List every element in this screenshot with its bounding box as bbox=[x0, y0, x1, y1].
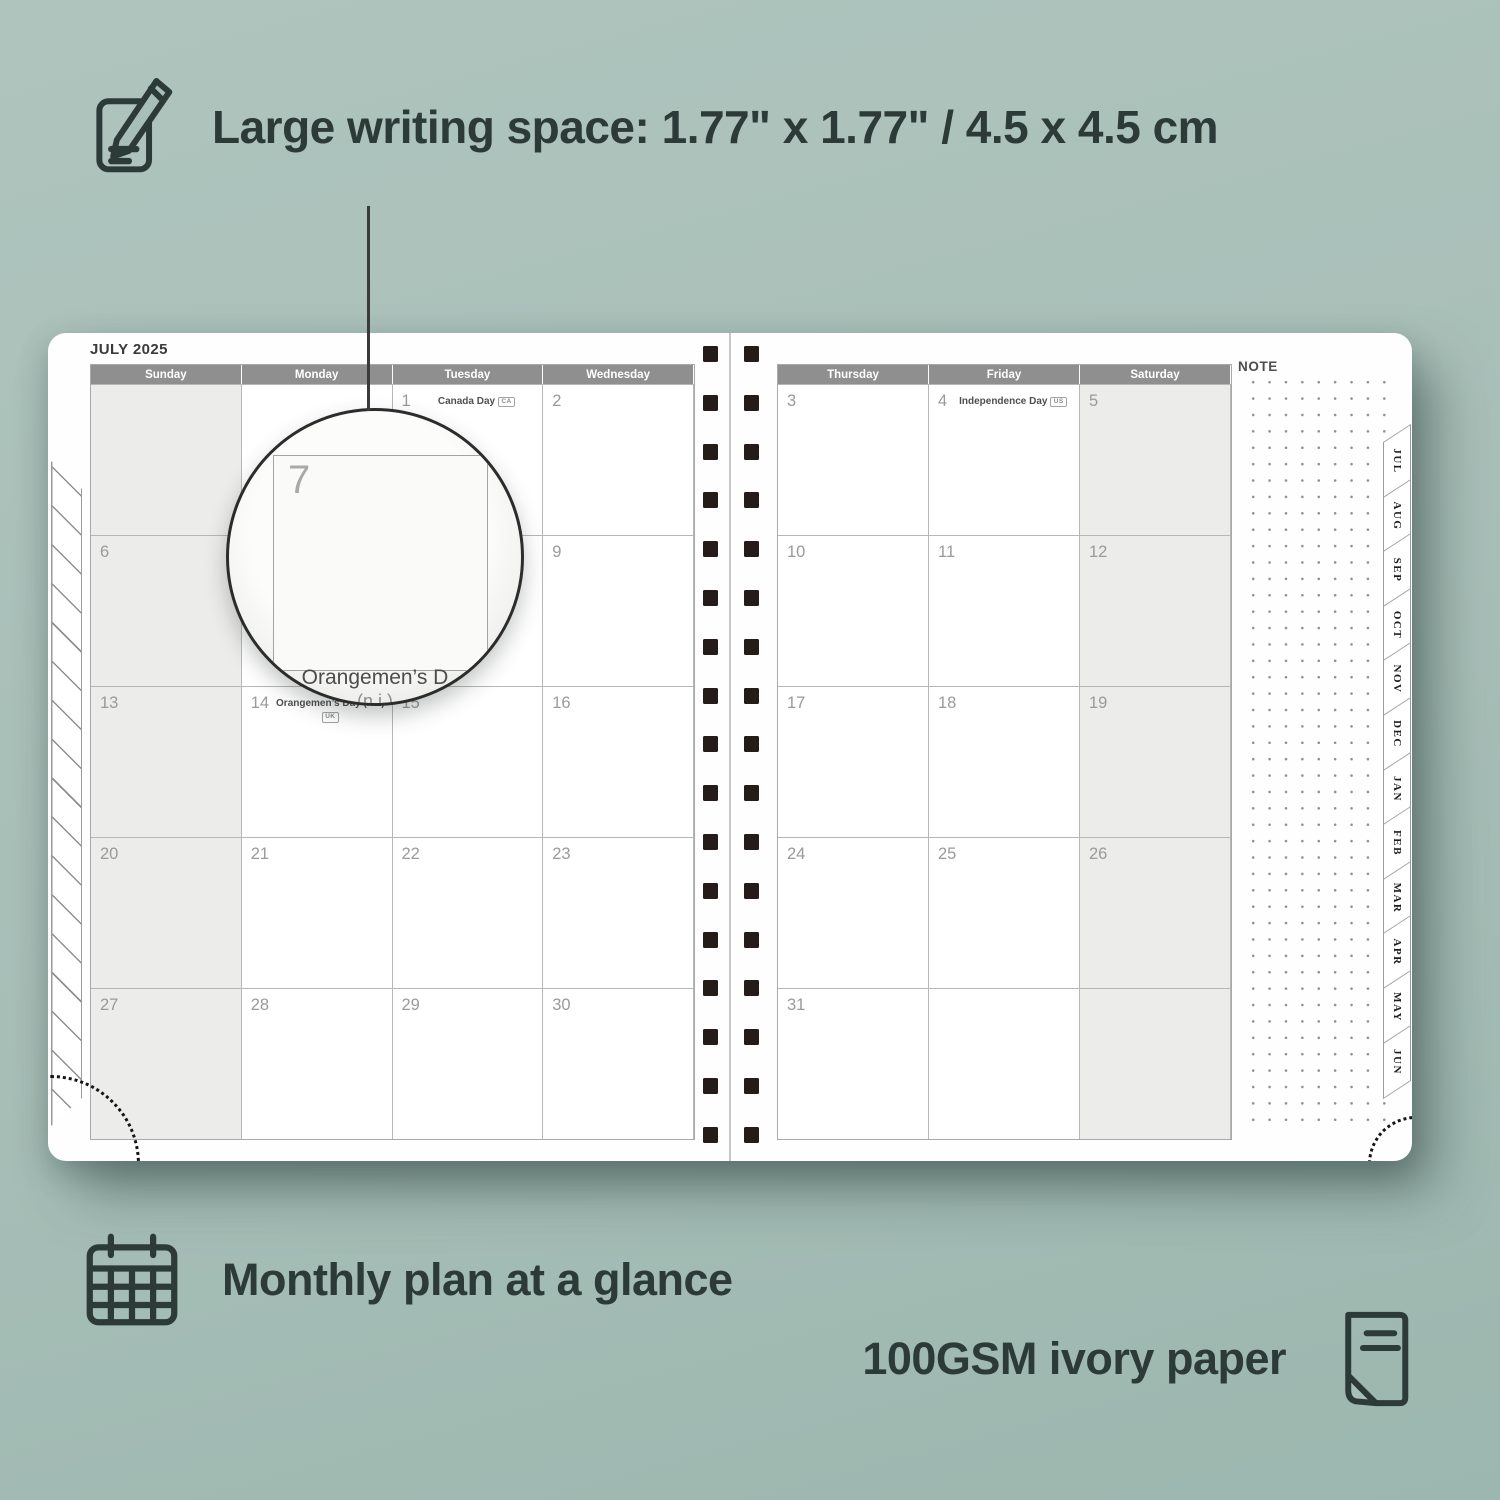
month-tab-label: DEC bbox=[1369, 720, 1412, 748]
day-header-wednesday: Wednesday bbox=[543, 365, 694, 384]
day-number: 2 bbox=[552, 392, 561, 411]
day-number: 9 bbox=[552, 543, 561, 562]
binding-hole bbox=[703, 395, 718, 411]
day-number: 22 bbox=[402, 845, 420, 864]
binding-hole bbox=[703, 1078, 718, 1094]
magnified-day-number: 7 bbox=[288, 458, 310, 503]
country-badge: US bbox=[1050, 397, 1067, 408]
day-number: 21 bbox=[251, 845, 269, 864]
magnified-holiday-text: Orangemen’s D bbox=[229, 666, 521, 690]
binding-hole bbox=[744, 834, 759, 850]
calendar-cell-26: 26 bbox=[1080, 837, 1231, 988]
binding-hole bbox=[744, 1127, 759, 1143]
day-header-sunday: Sunday bbox=[91, 365, 242, 384]
binding-hole bbox=[744, 980, 759, 996]
month-tab-label: MAR bbox=[1369, 884, 1412, 912]
binding-hole bbox=[703, 444, 718, 460]
binding-hole bbox=[744, 541, 759, 557]
note-label: NOTE bbox=[1238, 359, 1287, 377]
day-number: 16 bbox=[552, 694, 570, 713]
binding-hole bbox=[744, 639, 759, 655]
day-number: 3 bbox=[787, 392, 796, 411]
binding-hole bbox=[703, 590, 718, 606]
month-tab-label: SEP bbox=[1369, 556, 1412, 584]
binding-hole bbox=[703, 688, 718, 704]
calendar-cell bbox=[1080, 988, 1231, 1139]
feature-monthly-plan: Monthly plan at a glance bbox=[84, 1232, 733, 1328]
binding-hole bbox=[744, 590, 759, 606]
calendar-cell-28: 28 bbox=[242, 988, 393, 1139]
month-tab-label: JUN bbox=[1369, 1048, 1412, 1076]
day-number: 27 bbox=[100, 996, 118, 1015]
day-number: 19 bbox=[1089, 694, 1107, 713]
calendar-cell bbox=[929, 988, 1080, 1139]
day-number: 31 bbox=[787, 996, 805, 1015]
paper-sheet-icon bbox=[1328, 1308, 1420, 1410]
binding-hole bbox=[744, 736, 759, 752]
day-number: 12 bbox=[1089, 543, 1107, 562]
holiday-label: Independence Day US bbox=[947, 395, 1079, 409]
binding-hole bbox=[703, 1127, 718, 1143]
binding-hole bbox=[703, 883, 718, 899]
day-number: 25 bbox=[938, 845, 956, 864]
magnified-writing-space: 7 bbox=[273, 455, 488, 671]
calendar-cell-4: 4Independence Day US bbox=[929, 384, 1080, 535]
calendar-cell-31: 31 bbox=[778, 988, 929, 1139]
day-number: 10 bbox=[787, 543, 805, 562]
calendar-cell-6: 6 bbox=[91, 535, 242, 686]
binding-hole bbox=[744, 1078, 759, 1094]
day-header-friday: Friday bbox=[929, 365, 1080, 384]
binding-hole bbox=[703, 932, 718, 948]
month-tab-label: JAN bbox=[1369, 775, 1412, 803]
calendar-grid-icon bbox=[84, 1232, 180, 1328]
day-number: 18 bbox=[938, 694, 956, 713]
day-number: 24 bbox=[787, 845, 805, 864]
day-header-tuesday: Tuesday bbox=[393, 365, 544, 384]
binding-hole bbox=[744, 1029, 759, 1045]
month-tab-jun: JUN bbox=[1383, 1034, 1411, 1090]
calendar-cell-13: 13 bbox=[91, 686, 242, 837]
note-pencil-icon bbox=[92, 76, 184, 178]
feature-paper: 100GSM ivory paper bbox=[862, 1308, 1420, 1410]
calendar-cell-5: 5 bbox=[1080, 384, 1231, 535]
day-number: 20 bbox=[100, 845, 118, 864]
calendar-cell-12: 12 bbox=[1080, 535, 1231, 686]
binding-hole bbox=[703, 639, 718, 655]
binding-hole bbox=[703, 541, 718, 557]
calendar-cell-18: 18 bbox=[929, 686, 1080, 837]
day-number: 17 bbox=[787, 694, 805, 713]
calendar-cell-17: 17 bbox=[778, 686, 929, 837]
binding-hole bbox=[744, 785, 759, 801]
writing-space-label: Large writing space: 1.77" x 1.77" / 4.5… bbox=[212, 100, 1218, 154]
binding-hole bbox=[703, 346, 718, 362]
month-tab-label: JUL bbox=[1369, 447, 1412, 475]
month-tab-label: OCT bbox=[1369, 611, 1412, 639]
binding-hole bbox=[703, 1029, 718, 1045]
calendar-cell-30: 30 bbox=[543, 988, 694, 1139]
binding-hole bbox=[744, 444, 759, 460]
day-number: 1 bbox=[402, 392, 411, 411]
binding-hole bbox=[744, 688, 759, 704]
day-number: 28 bbox=[251, 996, 269, 1015]
calendar-cell-9: 9 bbox=[543, 535, 694, 686]
binding-hole bbox=[744, 395, 759, 411]
page-crease bbox=[729, 333, 731, 1161]
magnifier-circle: 7 Orangemen’s D (n.i.) bbox=[226, 408, 524, 706]
calendar-cell-10: 10 bbox=[778, 535, 929, 686]
month-tab-label: APR bbox=[1369, 938, 1412, 966]
note-section: NOTE bbox=[1238, 361, 1391, 1141]
calendar-cell-21: 21 bbox=[242, 837, 393, 988]
calendar-cell-22: 22 bbox=[393, 837, 544, 988]
day-number: 6 bbox=[100, 543, 109, 562]
calendar-cell-23: 23 bbox=[543, 837, 694, 988]
day-number: 26 bbox=[1089, 845, 1107, 864]
calendar-cell-14: 14Orangemen’s Day (n.i.) UK bbox=[242, 686, 393, 837]
dot-grid bbox=[1242, 369, 1387, 1133]
month-tab-label: AUG bbox=[1369, 502, 1412, 530]
binding-hole bbox=[744, 883, 759, 899]
calendar-cell-11: 11 bbox=[929, 535, 1080, 686]
month-tab-label: FEB bbox=[1369, 829, 1412, 857]
day-number: 11 bbox=[938, 543, 955, 562]
binding-hole bbox=[703, 492, 718, 508]
calendar-cell-15: 15 bbox=[393, 686, 544, 837]
calendar-cell-3: 3 bbox=[778, 384, 929, 535]
day-number: 5 bbox=[1089, 392, 1098, 411]
month-tab-label: NOV bbox=[1369, 665, 1412, 693]
calendar-cell-16: 16 bbox=[543, 686, 694, 837]
day-number: 4 bbox=[938, 392, 947, 411]
calendar-cell-24: 24 bbox=[778, 837, 929, 988]
calendar-cell bbox=[91, 384, 242, 535]
planner-spread: JULY 2025 SundayMondayTuesdayWednesday1C… bbox=[48, 333, 1412, 1161]
binding-hole bbox=[703, 785, 718, 801]
month-tab-label: MAY bbox=[1369, 993, 1412, 1021]
calendar-grid-right-page: ThursdayFridaySaturday34Independence Day… bbox=[777, 364, 1232, 1140]
paper-label: 100GSM ivory paper bbox=[862, 1333, 1286, 1385]
binding-hole bbox=[703, 736, 718, 752]
calendar-cell-2: 2 bbox=[543, 384, 694, 535]
day-number: 13 bbox=[100, 694, 118, 713]
feature-writing-space: Large writing space: 1.77" x 1.77" / 4.5… bbox=[92, 76, 1218, 178]
month-title: JULY 2025 bbox=[90, 341, 168, 358]
binding-hole bbox=[744, 492, 759, 508]
calendar-cell-20: 20 bbox=[91, 837, 242, 988]
page-edge-hatching bbox=[51, 461, 82, 1126]
calendar-cell-29: 29 bbox=[393, 988, 544, 1139]
day-header-saturday: Saturday bbox=[1080, 365, 1231, 384]
binding-hole bbox=[744, 932, 759, 948]
binding-hole bbox=[703, 980, 718, 996]
callout-pointer-line bbox=[367, 206, 370, 411]
binding-hole bbox=[703, 834, 718, 850]
country-badge: UK bbox=[322, 712, 339, 723]
day-number: 30 bbox=[552, 996, 570, 1015]
monthly-plan-label: Monthly plan at a glance bbox=[222, 1254, 733, 1306]
calendar-cell-19: 19 bbox=[1080, 686, 1231, 837]
calendar-cell-25: 25 bbox=[929, 837, 1080, 988]
day-header-thursday: Thursday bbox=[778, 365, 929, 384]
country-badge: CA bbox=[498, 397, 515, 408]
binding-hole bbox=[744, 346, 759, 362]
day-number: 29 bbox=[402, 996, 420, 1015]
day-number: 23 bbox=[552, 845, 570, 864]
holiday-label: Canada Day CA bbox=[411, 395, 543, 409]
